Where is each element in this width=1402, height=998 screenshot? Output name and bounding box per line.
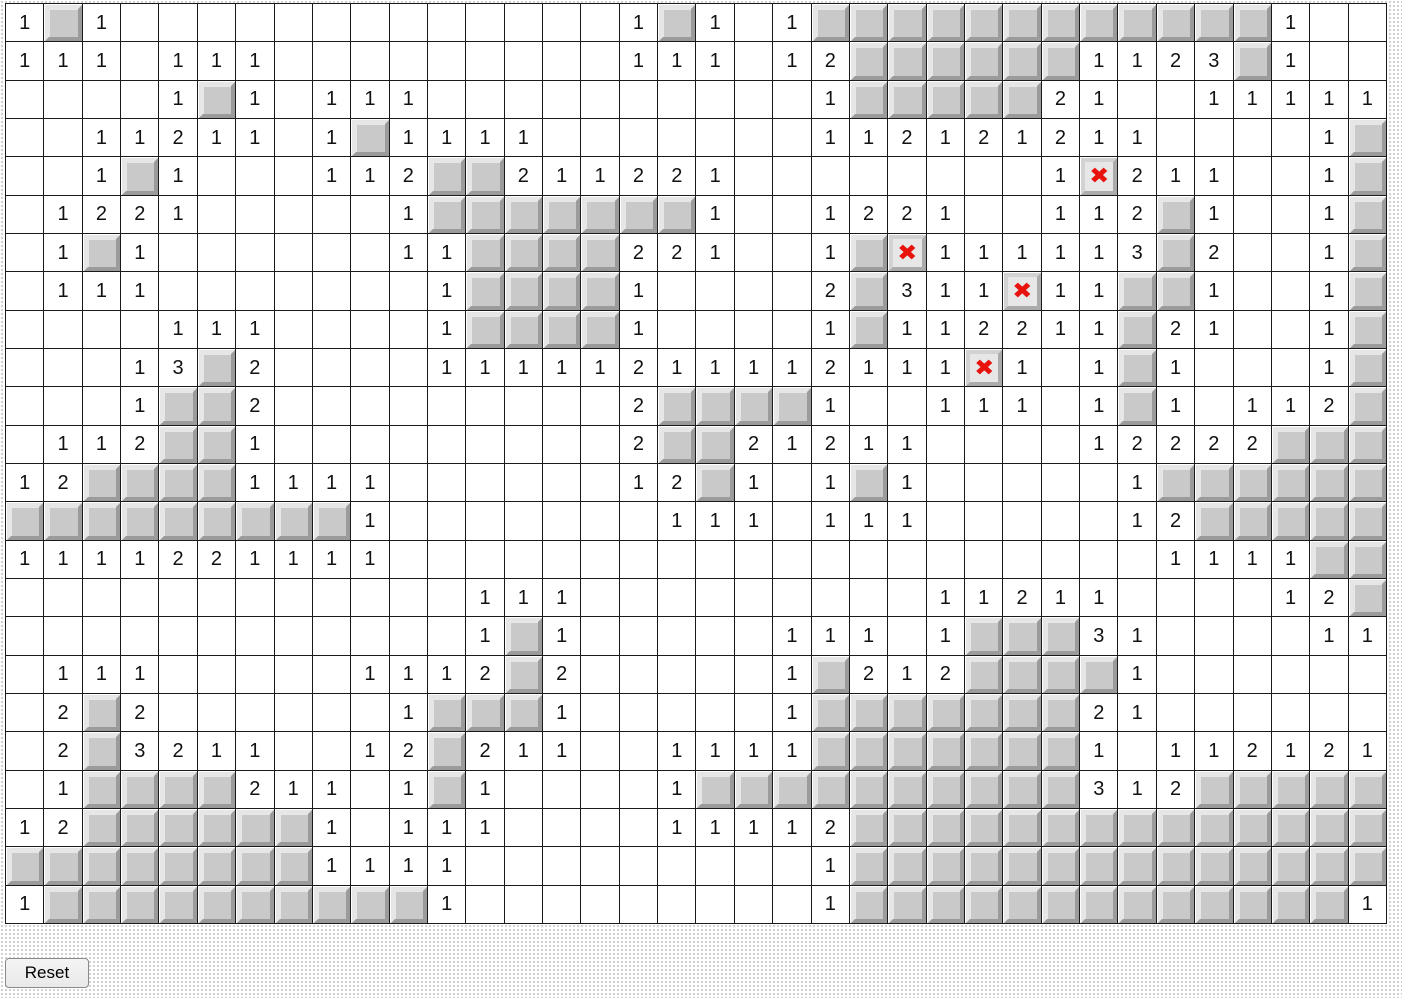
cell-r12-c14[interactable] (543, 464, 581, 502)
cell-r18-c31[interactable] (1195, 694, 1233, 732)
cell-r2-c20[interactable] (773, 81, 811, 119)
cell-r22-c25[interactable] (965, 847, 1003, 885)
cell-r20-c10[interactable]: 1 (390, 771, 428, 809)
cell-r15-c1[interactable] (44, 579, 82, 617)
cell-r1-c17[interactable]: 1 (658, 42, 696, 80)
unrevealed-tile[interactable] (84, 235, 120, 271)
cell-r3-c34[interactable]: 1 (1310, 119, 1348, 157)
unrevealed-tile[interactable] (1158, 848, 1194, 884)
cell-r23-c22[interactable] (850, 886, 888, 924)
cell-r13-c19[interactable]: 1 (735, 502, 773, 540)
cell-r14-c17[interactable] (658, 541, 696, 579)
cell-r13-c10[interactable] (390, 502, 428, 540)
cell-r4-c29[interactable]: 2 (1118, 157, 1156, 195)
cell-r6-c19[interactable] (735, 234, 773, 272)
cell-r11-c17[interactable] (658, 426, 696, 464)
cell-r8-c31[interactable]: 1 (1195, 311, 1233, 349)
cell-r13-c2[interactable] (83, 502, 121, 540)
cell-r10-c25[interactable]: 1 (965, 387, 1003, 425)
cell-r17-c5[interactable] (198, 656, 236, 694)
cell-r19-c5[interactable]: 1 (198, 732, 236, 770)
unrevealed-tile[interactable] (1311, 503, 1347, 539)
cell-r5-c3[interactable]: 2 (121, 196, 159, 234)
cell-r2-c29[interactable] (1118, 81, 1156, 119)
cell-r4-c25[interactable] (965, 157, 1003, 195)
cell-r10-c35[interactable] (1349, 387, 1387, 425)
cell-r11-c2[interactable]: 1 (83, 426, 121, 464)
cell-r0-c12[interactable] (466, 4, 504, 42)
cell-r5-c12[interactable] (466, 196, 504, 234)
unrevealed-tile[interactable] (1119, 312, 1155, 348)
cell-r5-c9[interactable] (351, 196, 389, 234)
cell-r8-c30[interactable]: 2 (1157, 311, 1195, 349)
cell-r7-c1[interactable]: 1 (44, 272, 82, 310)
cell-r21-c22[interactable] (850, 809, 888, 847)
cell-r18-c12[interactable] (466, 694, 504, 732)
cell-r6-c7[interactable] (275, 234, 313, 272)
unrevealed-tile[interactable] (736, 772, 772, 808)
cell-r3-c12[interactable]: 1 (466, 119, 504, 157)
cell-r14-c22[interactable] (850, 541, 888, 579)
unrevealed-tile[interactable] (1311, 848, 1347, 884)
cell-r19-c16[interactable] (620, 732, 658, 770)
cell-r7-c7[interactable] (275, 272, 313, 310)
cell-r0-c15[interactable] (581, 4, 619, 42)
cell-r20-c23[interactable] (888, 771, 926, 809)
unrevealed-tile[interactable] (160, 388, 196, 424)
unrevealed-tile[interactable] (237, 810, 273, 846)
unrevealed-tile[interactable] (851, 82, 887, 118)
cell-r2-c34[interactable]: 1 (1310, 81, 1348, 119)
cell-r14-c11[interactable] (428, 541, 466, 579)
cell-r3-c20[interactable] (773, 119, 811, 157)
cell-r4-c28[interactable]: ✖ (1080, 157, 1118, 195)
cell-r3-c35[interactable] (1349, 119, 1387, 157)
cell-r16-c26[interactable] (1003, 617, 1041, 655)
cell-r22-c34[interactable] (1310, 847, 1348, 885)
cell-r10-c32[interactable]: 1 (1234, 387, 1272, 425)
cell-r11-c27[interactable] (1042, 426, 1080, 464)
cell-r19-c9[interactable]: 1 (351, 732, 389, 770)
cell-r20-c3[interactable] (121, 771, 159, 809)
cell-r3-c14[interactable] (543, 119, 581, 157)
cell-r6-c29[interactable]: 3 (1118, 234, 1156, 272)
unrevealed-tile[interactable] (122, 848, 158, 884)
cell-r14-c21[interactable] (812, 541, 850, 579)
cell-r1-c19[interactable] (735, 42, 773, 80)
cell-r2-c21[interactable]: 1 (812, 81, 850, 119)
cell-r9-c10[interactable] (390, 349, 428, 387)
cell-r10-c1[interactable] (44, 387, 82, 425)
unrevealed-tile[interactable] (966, 772, 1002, 808)
cell-r17-c11[interactable]: 1 (428, 656, 466, 694)
cell-r6-c3[interactable]: 1 (121, 234, 159, 272)
cell-r23-c24[interactable] (927, 886, 965, 924)
cell-r15-c33[interactable]: 1 (1272, 579, 1310, 617)
cell-r13-c6[interactable] (236, 502, 274, 540)
cell-r6-c32[interactable] (1234, 234, 1272, 272)
unrevealed-tile[interactable] (1081, 810, 1117, 846)
unrevealed-tile[interactable] (45, 887, 81, 923)
cell-r4-c8[interactable]: 1 (313, 157, 351, 195)
unrevealed-tile[interactable] (851, 887, 887, 923)
cell-r19-c14[interactable]: 1 (543, 732, 581, 770)
cell-r18-c26[interactable] (1003, 694, 1041, 732)
cell-r13-c24[interactable] (927, 502, 965, 540)
cell-r16-c19[interactable] (735, 617, 773, 655)
cell-r1-c13[interactable] (505, 42, 543, 80)
cell-r17-c21[interactable] (812, 656, 850, 694)
unrevealed-tile[interactable] (276, 810, 312, 846)
cell-r2-c15[interactable] (581, 81, 619, 119)
cell-r2-c11[interactable] (428, 81, 466, 119)
unrevealed-tile[interactable] (1119, 388, 1155, 424)
cell-r14-c13[interactable] (505, 541, 543, 579)
cell-r6-c0[interactable] (6, 234, 44, 272)
cell-r12-c24[interactable] (927, 464, 965, 502)
cell-r17-c32[interactable] (1234, 656, 1272, 694)
cell-r7-c22[interactable] (850, 272, 888, 310)
unrevealed-tile[interactable] (1004, 810, 1040, 846)
cell-r1-c1[interactable]: 1 (44, 42, 82, 80)
cell-r8-c5[interactable]: 1 (198, 311, 236, 349)
cell-r12-c20[interactable] (773, 464, 811, 502)
cell-r23-c25[interactable] (965, 886, 1003, 924)
unrevealed-tile[interactable] (813, 733, 849, 769)
cell-r9-c15[interactable]: 1 (581, 349, 619, 387)
cell-r19-c20[interactable]: 1 (773, 732, 811, 770)
cell-r14-c20[interactable] (773, 541, 811, 579)
cell-r5-c28[interactable]: 1 (1080, 196, 1118, 234)
unrevealed-tile[interactable] (7, 848, 43, 884)
cell-r17-c0[interactable] (6, 656, 44, 694)
unrevealed-tile[interactable] (889, 887, 925, 923)
cell-r5-c25[interactable] (965, 196, 1003, 234)
cell-r21-c19[interactable]: 1 (735, 809, 773, 847)
unrevealed-tile[interactable] (506, 657, 542, 693)
cell-r17-c20[interactable]: 1 (773, 656, 811, 694)
cell-r1-c3[interactable] (121, 42, 159, 80)
cell-r2-c26[interactable] (1003, 81, 1041, 119)
cell-r21-c6[interactable] (236, 809, 274, 847)
cell-r14-c4[interactable]: 2 (159, 541, 197, 579)
cell-r7-c33[interactable] (1272, 272, 1310, 310)
unrevealed-tile[interactable] (697, 772, 733, 808)
cell-r19-c25[interactable] (965, 732, 1003, 770)
cell-r21-c10[interactable]: 1 (390, 809, 428, 847)
cell-r9-c13[interactable]: 1 (505, 349, 543, 387)
cell-r23-c5[interactable] (198, 886, 236, 924)
cell-r13-c28[interactable] (1080, 502, 1118, 540)
cell-r11-c34[interactable] (1310, 426, 1348, 464)
cell-r10-c30[interactable]: 1 (1157, 387, 1195, 425)
cell-r8-c2[interactable] (83, 311, 121, 349)
cell-r7-c24[interactable]: 1 (927, 272, 965, 310)
cell-r8-c34[interactable]: 1 (1310, 311, 1348, 349)
cell-r2-c31[interactable]: 1 (1195, 81, 1233, 119)
cell-r15-c10[interactable] (390, 579, 428, 617)
cell-r21-c15[interactable] (581, 809, 619, 847)
cell-r0-c13[interactable] (505, 4, 543, 42)
unrevealed-tile[interactable] (966, 43, 1002, 79)
cell-r21-c12[interactable]: 1 (466, 809, 504, 847)
cell-r22-c21[interactable]: 1 (812, 847, 850, 885)
cell-r11-c11[interactable] (428, 426, 466, 464)
unrevealed-tile[interactable] (276, 503, 312, 539)
unrevealed-tile[interactable] (1350, 235, 1386, 271)
cell-r5-c17[interactable] (658, 196, 696, 234)
cell-r0-c14[interactable] (543, 4, 581, 42)
cell-r17-c24[interactable]: 2 (927, 656, 965, 694)
unrevealed-tile[interactable] (122, 158, 158, 194)
cell-r22-c23[interactable] (888, 847, 926, 885)
cell-r18-c4[interactable] (159, 694, 197, 732)
cell-r10-c16[interactable]: 2 (620, 387, 658, 425)
cell-r19-c6[interactable]: 1 (236, 732, 274, 770)
unrevealed-tile[interactable] (429, 772, 465, 808)
cell-r1-c5[interactable]: 1 (198, 42, 236, 80)
cell-r6-c33[interactable] (1272, 234, 1310, 272)
unrevealed-tile[interactable] (1158, 273, 1194, 309)
cell-r3-c1[interactable] (44, 119, 82, 157)
cell-r10-c17[interactable] (658, 387, 696, 425)
cell-r4-c21[interactable] (812, 157, 850, 195)
cell-r7-c9[interactable] (351, 272, 389, 310)
cell-r23-c11[interactable]: 1 (428, 886, 466, 924)
cell-r4-c12[interactable] (466, 157, 504, 195)
cell-r6-c14[interactable] (543, 234, 581, 272)
cell-r23-c6[interactable] (236, 886, 274, 924)
cell-r22-c31[interactable] (1195, 847, 1233, 885)
unrevealed-tile[interactable] (813, 695, 849, 731)
cell-r15-c8[interactable] (313, 579, 351, 617)
cell-r19-c19[interactable]: 1 (735, 732, 773, 770)
cell-r23-c29[interactable] (1118, 886, 1156, 924)
unrevealed-tile[interactable] (199, 465, 235, 501)
cell-r18-c20[interactable]: 1 (773, 694, 811, 732)
unrevealed-tile[interactable] (1273, 887, 1309, 923)
cell-r12-c11[interactable] (428, 464, 466, 502)
cell-r21-c0[interactable]: 1 (6, 809, 44, 847)
cell-r22-c16[interactable] (620, 847, 658, 885)
cell-r9-c19[interactable]: 1 (735, 349, 773, 387)
cell-r4-c17[interactable]: 2 (658, 157, 696, 195)
cell-r6-c13[interactable] (505, 234, 543, 272)
cell-r3-c18[interactable] (696, 119, 734, 157)
cell-r18-c14[interactable]: 1 (543, 694, 581, 732)
cell-r3-c32[interactable] (1234, 119, 1272, 157)
cell-r1-c12[interactable] (466, 42, 504, 80)
cell-r7-c20[interactable] (773, 272, 811, 310)
cell-r6-c35[interactable] (1349, 234, 1387, 272)
cell-r1-c35[interactable] (1349, 42, 1387, 80)
cell-r5-c35[interactable] (1349, 196, 1387, 234)
unrevealed-tile[interactable] (84, 887, 120, 923)
cell-r11-c9[interactable] (351, 426, 389, 464)
cell-r7-c13[interactable] (505, 272, 543, 310)
cell-r15-c31[interactable] (1195, 579, 1233, 617)
unrevealed-tile[interactable] (889, 733, 925, 769)
unrevealed-tile[interactable] (851, 465, 887, 501)
cell-r18-c16[interactable] (620, 694, 658, 732)
cell-r12-c23[interactable]: 1 (888, 464, 926, 502)
cell-r14-c19[interactable] (735, 541, 773, 579)
cell-r12-c35[interactable] (1349, 464, 1387, 502)
unrevealed-tile[interactable] (1158, 810, 1194, 846)
cell-r11-c33[interactable] (1272, 426, 1310, 464)
cell-r1-c7[interactable] (275, 42, 313, 80)
cell-r7-c29[interactable] (1118, 272, 1156, 310)
cell-r7-c17[interactable] (658, 272, 696, 310)
cell-r11-c29[interactable]: 2 (1118, 426, 1156, 464)
cell-r14-c6[interactable]: 1 (236, 541, 274, 579)
cell-r9-c21[interactable]: 2 (812, 349, 850, 387)
cell-r23-c30[interactable] (1157, 886, 1195, 924)
cell-r11-c19[interactable]: 2 (735, 426, 773, 464)
cell-r14-c32[interactable]: 1 (1234, 541, 1272, 579)
cell-r4-c13[interactable]: 2 (505, 157, 543, 195)
cell-r6-c10[interactable]: 1 (390, 234, 428, 272)
unrevealed-tile[interactable] (1235, 887, 1271, 923)
cell-r8-c13[interactable] (505, 311, 543, 349)
cell-r14-c28[interactable] (1080, 541, 1118, 579)
cell-r17-c29[interactable]: 1 (1118, 656, 1156, 694)
cell-r4-c32[interactable] (1234, 157, 1272, 195)
cell-r10-c21[interactable]: 1 (812, 387, 850, 425)
cell-r5-c27[interactable]: 1 (1042, 196, 1080, 234)
unrevealed-tile[interactable] (1158, 197, 1194, 233)
unrevealed-tile[interactable] (84, 772, 120, 808)
cell-r9-c17[interactable]: 1 (658, 349, 696, 387)
cell-r15-c27[interactable]: 1 (1042, 579, 1080, 617)
cell-r8-c4[interactable]: 1 (159, 311, 197, 349)
cell-r11-c31[interactable]: 2 (1195, 426, 1233, 464)
unrevealed-tile[interactable] (659, 5, 695, 41)
unrevealed-tile[interactable] (1235, 503, 1271, 539)
unrevealed-tile[interactable] (1350, 350, 1386, 386)
cell-r19-c7[interactable] (275, 732, 313, 770)
cell-r21-c24[interactable] (927, 809, 965, 847)
cell-r2-c0[interactable] (6, 81, 44, 119)
cell-r22-c11[interactable]: 1 (428, 847, 466, 885)
cell-r3-c0[interactable] (6, 119, 44, 157)
cell-r5-c33[interactable] (1272, 196, 1310, 234)
unrevealed-tile[interactable] (84, 810, 120, 846)
unrevealed-tile[interactable] (467, 273, 503, 309)
cell-r11-c6[interactable]: 1 (236, 426, 274, 464)
cell-r8-c0[interactable] (6, 311, 44, 349)
unrevealed-tile[interactable] (889, 772, 925, 808)
cell-r4-c24[interactable] (927, 157, 965, 195)
unrevealed-tile[interactable] (506, 618, 542, 654)
cell-r14-c34[interactable] (1310, 541, 1348, 579)
cell-r21-c33[interactable] (1272, 809, 1310, 847)
cell-r8-c9[interactable] (351, 311, 389, 349)
unrevealed-tile[interactable] (659, 388, 695, 424)
cell-r12-c26[interactable] (1003, 464, 1041, 502)
cell-r4-c33[interactable] (1272, 157, 1310, 195)
cell-r6-c5[interactable] (198, 234, 236, 272)
cell-r0-c27[interactable] (1042, 4, 1080, 42)
x-marked-tile[interactable]: ✖ (1004, 273, 1040, 309)
cell-r20-c18[interactable] (696, 771, 734, 809)
cell-r20-c5[interactable] (198, 771, 236, 809)
cell-r10-c8[interactable] (313, 387, 351, 425)
cell-r17-c22[interactable]: 2 (850, 656, 888, 694)
cell-r11-c7[interactable] (275, 426, 313, 464)
cell-r3-c28[interactable]: 1 (1080, 119, 1118, 157)
cell-r5-c34[interactable]: 1 (1310, 196, 1348, 234)
cell-r3-c4[interactable]: 2 (159, 119, 197, 157)
cell-r16-c11[interactable] (428, 617, 466, 655)
cell-r22-c32[interactable] (1234, 847, 1272, 885)
unrevealed-tile[interactable] (813, 772, 849, 808)
unrevealed-tile[interactable] (1235, 848, 1271, 884)
cell-r18-c15[interactable] (581, 694, 619, 732)
cell-r12-c33[interactable] (1272, 464, 1310, 502)
cell-r18-c22[interactable] (850, 694, 888, 732)
unrevealed-tile[interactable] (1119, 273, 1155, 309)
cell-r9-c11[interactable]: 1 (428, 349, 466, 387)
cell-r20-c26[interactable] (1003, 771, 1041, 809)
unrevealed-tile[interactable] (1350, 312, 1386, 348)
cell-r12-c4[interactable] (159, 464, 197, 502)
cell-r9-c1[interactable] (44, 349, 82, 387)
cell-r4-c4[interactable]: 1 (159, 157, 197, 195)
cell-r16-c16[interactable] (620, 617, 658, 655)
cell-r16-c22[interactable]: 1 (850, 617, 888, 655)
cell-r11-c30[interactable]: 2 (1157, 426, 1195, 464)
cell-r15-c7[interactable] (275, 579, 313, 617)
cell-r8-c27[interactable]: 1 (1042, 311, 1080, 349)
unrevealed-tile[interactable] (160, 887, 196, 923)
unrevealed-tile[interactable] (1196, 5, 1232, 41)
cell-r22-c12[interactable] (466, 847, 504, 885)
unrevealed-tile[interactable] (544, 312, 580, 348)
unrevealed-tile[interactable] (1004, 733, 1040, 769)
unrevealed-tile[interactable] (851, 5, 887, 41)
cell-r17-c17[interactable] (658, 656, 696, 694)
cell-r6-c8[interactable] (313, 234, 351, 272)
cell-r0-c17[interactable] (658, 4, 696, 42)
cell-r10-c3[interactable]: 1 (121, 387, 159, 425)
cell-r21-c21[interactable]: 2 (812, 809, 850, 847)
unrevealed-tile[interactable] (889, 43, 925, 79)
cell-r20-c29[interactable]: 1 (1118, 771, 1156, 809)
cell-r19-c22[interactable] (850, 732, 888, 770)
cell-r11-c32[interactable]: 2 (1234, 426, 1272, 464)
cell-r9-c29[interactable] (1118, 349, 1156, 387)
unrevealed-tile[interactable] (276, 887, 312, 923)
cell-r15-c5[interactable] (198, 579, 236, 617)
cell-r19-c35[interactable]: 1 (1349, 732, 1387, 770)
cell-r17-c35[interactable] (1349, 656, 1387, 694)
cell-r15-c23[interactable] (888, 579, 926, 617)
cell-r5-c5[interactable] (198, 196, 236, 234)
unrevealed-tile[interactable] (160, 810, 196, 846)
unrevealed-tile[interactable] (1119, 810, 1155, 846)
cell-r22-c22[interactable] (850, 847, 888, 885)
cell-r8-c15[interactable] (581, 311, 619, 349)
cell-r18-c33[interactable] (1272, 694, 1310, 732)
cell-r15-c18[interactable] (696, 579, 734, 617)
unrevealed-tile[interactable] (851, 810, 887, 846)
cell-r21-c9[interactable] (351, 809, 389, 847)
unrevealed-tile[interactable] (582, 197, 618, 233)
cell-r21-c34[interactable] (1310, 809, 1348, 847)
unrevealed-tile[interactable] (276, 848, 312, 884)
unrevealed-tile[interactable] (659, 197, 695, 233)
